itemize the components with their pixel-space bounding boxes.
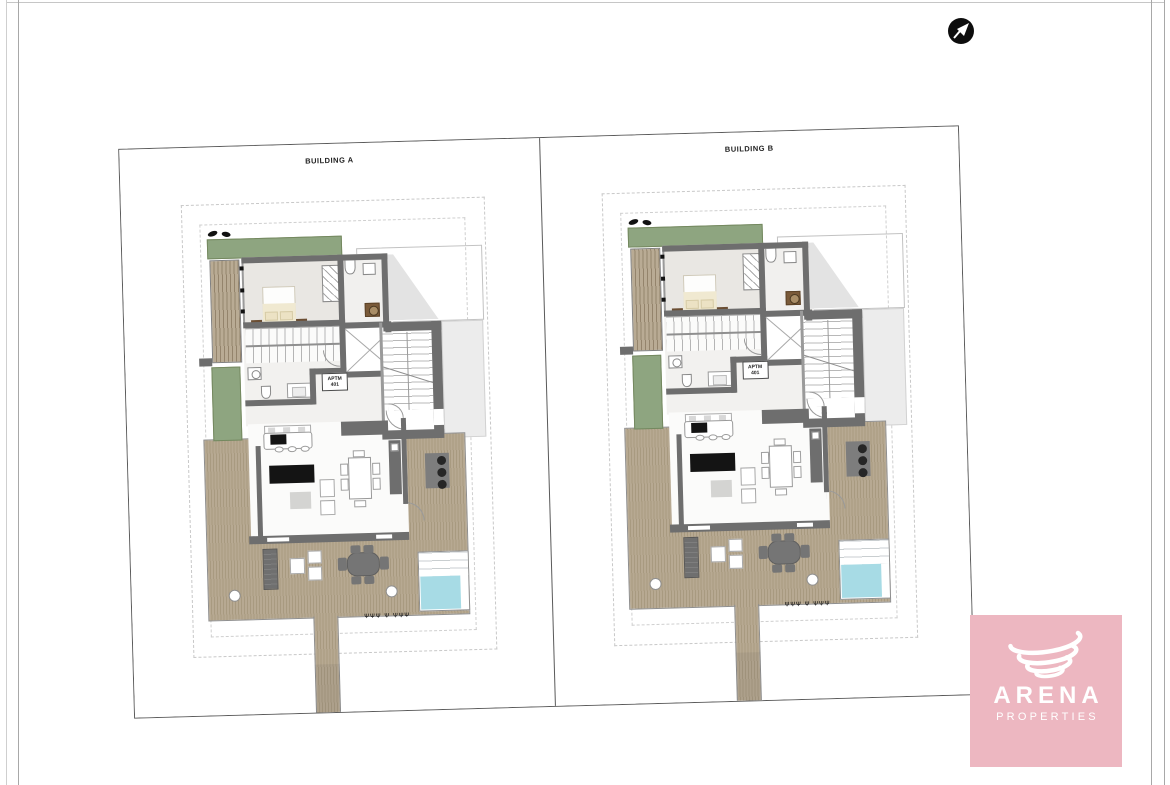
plant-symbol xyxy=(207,230,218,238)
page-left-rule-inner xyxy=(18,0,19,785)
outdoor-bar-stool xyxy=(857,444,866,453)
shower xyxy=(668,355,682,368)
appliance xyxy=(811,431,819,439)
coffee-table xyxy=(710,480,731,498)
dining-chair xyxy=(773,438,785,445)
bathroom-sink xyxy=(783,251,796,263)
page-right-rule-inner xyxy=(1151,0,1152,785)
pergola-louvres xyxy=(630,248,663,352)
pool-steps xyxy=(839,540,889,565)
outdoor-chair xyxy=(364,576,374,584)
cooktop xyxy=(270,434,286,444)
dining-chair xyxy=(372,478,380,490)
arrow-circle-logo-icon xyxy=(947,17,975,45)
window-tick xyxy=(240,288,244,292)
side-table xyxy=(308,550,322,563)
plant-symbol xyxy=(642,219,652,226)
outdoor-chair xyxy=(363,545,373,553)
dining-chair xyxy=(761,467,769,479)
planter-left xyxy=(211,367,242,442)
apartment-label-line2: 401 xyxy=(331,382,340,388)
apartment-label-line2: 401 xyxy=(751,370,760,376)
bathroom-sink xyxy=(362,263,375,275)
plan-slot: ΨΨΨ Ψ ΨΨΨ APTM 401 xyxy=(540,126,974,705)
wall xyxy=(619,347,632,355)
shrub-symbols: ΨΨΨ Ψ ΨΨΨ xyxy=(785,599,865,611)
side-table xyxy=(728,539,742,552)
outdoor-chair xyxy=(380,556,389,569)
armchair xyxy=(740,467,755,485)
outdoor-chair xyxy=(758,546,767,559)
pergola-louvres xyxy=(209,260,242,364)
planter-pot xyxy=(806,573,818,585)
dining-chair xyxy=(760,452,768,464)
pool-water xyxy=(420,575,461,609)
outdoor-chair xyxy=(772,564,782,572)
washing-machine xyxy=(785,291,800,305)
shower xyxy=(247,367,261,380)
wall xyxy=(341,420,388,435)
window-tick xyxy=(660,277,664,281)
window xyxy=(687,525,709,530)
brand-name: ARENA xyxy=(988,683,1103,709)
outdoor-chair xyxy=(338,558,347,571)
sofa xyxy=(269,465,314,484)
bar-stool xyxy=(695,435,704,441)
toilet xyxy=(344,259,355,274)
outdoor-chair xyxy=(350,545,360,553)
armchair xyxy=(320,500,335,515)
outdoor-bar-stool xyxy=(858,456,867,465)
toilet xyxy=(261,386,271,399)
page-right-rule xyxy=(1164,0,1165,785)
washing-machine xyxy=(365,303,380,317)
shrub-symbols: ΨΨΨ Ψ ΨΨΨ xyxy=(364,611,444,623)
brand-swirl-icon xyxy=(1000,625,1092,681)
dining-chair xyxy=(774,488,786,495)
coffee-table xyxy=(290,492,311,510)
dining-chair xyxy=(354,500,366,507)
toilet xyxy=(765,248,776,263)
bar-stool xyxy=(721,434,730,440)
outdoor-chair xyxy=(785,564,795,572)
pillow xyxy=(265,311,278,320)
pool-steps xyxy=(419,551,469,576)
outdoor-dining-table xyxy=(347,552,381,577)
dining-chair xyxy=(792,451,800,463)
plant-symbol xyxy=(221,231,231,238)
side-table xyxy=(290,558,305,574)
dining-chair xyxy=(353,450,365,457)
apartment-label: APTM 401 xyxy=(322,373,348,392)
wall xyxy=(761,409,808,424)
window-tick xyxy=(660,255,664,259)
brand-tagline: PROPERTIES xyxy=(993,711,1099,723)
sofa xyxy=(689,453,734,472)
wall xyxy=(803,417,865,428)
walkway-shade xyxy=(735,652,761,701)
planter-left xyxy=(632,355,663,430)
walkway-shade xyxy=(315,664,341,713)
pool xyxy=(418,550,471,611)
window-tick xyxy=(241,309,245,313)
window xyxy=(267,537,289,542)
side-table xyxy=(710,546,725,562)
brand-watermark: ARENA PROPERTIES xyxy=(970,615,1122,767)
apartment-label: APTM 401 xyxy=(742,361,768,380)
outdoor-chair xyxy=(784,533,794,541)
outdoor-chair xyxy=(800,545,809,558)
side-table xyxy=(308,566,322,580)
wall xyxy=(382,429,444,440)
wall xyxy=(199,358,212,366)
toilet xyxy=(681,374,691,387)
dining-chair xyxy=(340,464,348,476)
window-tick xyxy=(240,266,244,270)
adjacent-structure xyxy=(441,320,486,438)
sheet-building-b: BUILDING B xyxy=(539,126,974,705)
sun-lounger xyxy=(683,537,699,578)
sheet-building-a: BUILDING A xyxy=(119,138,554,717)
armchair xyxy=(740,488,755,503)
dining-table xyxy=(768,445,792,488)
bar-stool xyxy=(708,434,717,440)
adjacent-structure xyxy=(861,308,906,426)
plant-symbol xyxy=(627,218,638,226)
outdoor-chair xyxy=(351,576,361,584)
sun-lounger xyxy=(262,549,278,590)
dining-chair xyxy=(372,463,380,475)
pool-water xyxy=(841,564,882,598)
door-opening xyxy=(854,397,864,413)
window xyxy=(796,523,812,527)
outdoor-bar-stool xyxy=(858,468,867,477)
pillow xyxy=(685,300,698,309)
outdoor-chair xyxy=(771,534,781,542)
armchair xyxy=(320,479,335,497)
dining-table xyxy=(348,457,372,500)
dining-chair xyxy=(793,466,801,478)
window xyxy=(376,534,392,538)
plan-sheets: BUILDING A xyxy=(118,125,975,718)
outdoor-dining-table xyxy=(767,540,801,565)
side-table xyxy=(728,555,742,569)
window-tick xyxy=(661,298,665,302)
pillow xyxy=(280,311,293,320)
planter-pot xyxy=(649,578,661,590)
cooktop xyxy=(691,423,707,433)
dining-chair xyxy=(341,479,349,491)
door-opening xyxy=(434,409,444,425)
pillow xyxy=(700,299,713,308)
appliance xyxy=(391,443,399,451)
page-left-rule xyxy=(6,0,7,785)
page-top-rule xyxy=(6,2,1164,3)
plan-slot: ΨΨΨ Ψ ΨΨΨ APTM 401 xyxy=(119,138,554,717)
pool xyxy=(838,538,891,599)
